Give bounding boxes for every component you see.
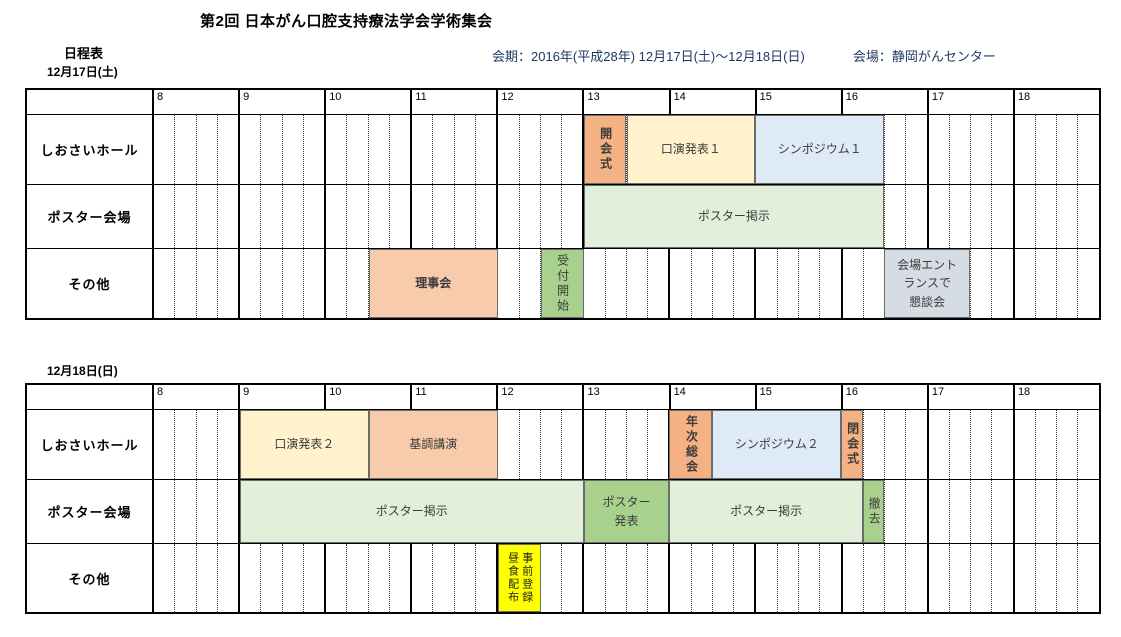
grid-quarter-cell (412, 185, 433, 248)
grid-quarter-cell (584, 544, 605, 612)
grid-quarter-cell (1057, 410, 1078, 479)
grid-quarter-cell (283, 544, 304, 612)
grid-quarter-cell (369, 115, 390, 184)
hour-label: 18 (1013, 90, 1099, 114)
grid-quarter-cell (369, 185, 390, 248)
grid-quarter-cell (261, 249, 282, 318)
grid-quarter-cell (1015, 544, 1036, 612)
grid-quarter-cell (562, 185, 584, 248)
grid-quarter-cell (304, 115, 326, 184)
grid-quarter-cell (929, 115, 950, 184)
grid-quarter-cell (369, 544, 390, 612)
hour-label: 14 (669, 90, 755, 114)
grid-quarter-cell (606, 410, 627, 479)
grid-quarter-cell (885, 115, 906, 184)
grid-quarter-cell (1057, 480, 1078, 543)
grid-quarter-cell (541, 115, 562, 184)
grid-quarter-cell (412, 544, 433, 612)
hour-cells: 89101112131415161718 (154, 90, 1099, 114)
grid-quarter-cell (734, 249, 756, 318)
grid-quarter-cell (950, 185, 971, 248)
grid-quarter-cell (455, 115, 476, 184)
hour-label: 8 (154, 385, 238, 409)
grid-quarter-cell (820, 249, 842, 318)
grid-quarter-cell (1057, 115, 1078, 184)
hour-label: 8 (154, 90, 238, 114)
grid-quarter-cell (1036, 115, 1057, 184)
grid-quarter-cell (950, 544, 971, 612)
grid-quarter-cell (175, 544, 196, 612)
grid-quarter-cell (433, 544, 454, 612)
schedule-label: 日程表 (64, 43, 103, 62)
grid-quarter-cell (713, 544, 734, 612)
grid-quarter-cell (971, 249, 992, 318)
schedule-table-day2: 89101112131415161718しおさいホール口演発表２基調講演年次総会… (25, 383, 1101, 614)
grid-quarter-cell (843, 544, 864, 612)
grid-quarter-cell (390, 115, 412, 184)
corner-cell (27, 90, 154, 114)
grid-quarter-cell (326, 115, 347, 184)
grid-quarter-cell (648, 544, 670, 612)
grid-quarter-cell (906, 185, 928, 248)
grid-quarter-cell (756, 544, 777, 612)
hour-label: 9 (238, 385, 324, 409)
grid-quarter-cell (197, 480, 218, 543)
grid-quarter-cell (433, 115, 454, 184)
grid-quarter-cell (971, 185, 992, 248)
schedule-row: しおさいホール口演発表２基調講演年次総会シンポジウム２閉会式 (27, 409, 1099, 479)
hour-label: 11 (410, 90, 496, 114)
hour-label: 12 (496, 385, 582, 409)
hour-label: 16 (841, 385, 927, 409)
grid-quarter-cell (520, 115, 541, 184)
grid-quarter-cell (992, 115, 1014, 184)
grid-quarter-cell (326, 249, 347, 318)
grid-quarter-cell (520, 249, 541, 318)
grid-quarter-cell (175, 480, 196, 543)
lunch-distribution-preregistration-column: 事前登録 (520, 552, 533, 604)
grid-quarter-cell (412, 115, 433, 184)
grid-quarter-cell (1015, 480, 1036, 543)
grid-quarter-cell (1078, 115, 1098, 184)
grid-quarter-cell (820, 544, 842, 612)
grid-quarter-cell (756, 249, 777, 318)
grid-quarter-cell (864, 249, 885, 318)
conference-period: 会期：2016年(平成28年) 12月17日(土)～12月18日(日) (492, 46, 805, 65)
grid-quarter-cell (218, 410, 240, 479)
grid-quarter-cell (1036, 249, 1057, 318)
hour-label: 17 (927, 385, 1013, 409)
grid-quarter-cell (885, 185, 906, 248)
grid-quarter-cell (197, 115, 218, 184)
hour-label: 13 (582, 90, 668, 114)
grid-quarter-cell (1078, 185, 1098, 248)
grid-quarter-cell (175, 410, 196, 479)
schedule-row: しおさいホール開会式口演発表１シンポジウム１ (27, 114, 1099, 184)
grid-quarter-cell (304, 249, 326, 318)
grid-quarter-cell (520, 410, 541, 479)
grid-quarter-cell (1015, 185, 1036, 248)
hour-label: 10 (324, 90, 410, 114)
grid-quarter-cell (261, 544, 282, 612)
annual-general-meeting: 年次総会 (669, 410, 712, 479)
grid-quarter-cell (197, 185, 218, 248)
grid-quarter-cell (971, 544, 992, 612)
grid-quarter-cell (885, 480, 906, 543)
symposium-1: シンポジウム１ (755, 115, 884, 184)
hour-label: 17 (927, 90, 1013, 114)
grid-quarter-cell (950, 115, 971, 184)
grid-quarter-cell (971, 115, 992, 184)
grid-quarter-cell (1015, 249, 1036, 318)
grid-quarter-cell (218, 249, 240, 318)
grid-quarter-cell (627, 249, 648, 318)
grid-quarter-cell (1057, 185, 1078, 248)
date-label-day2: 12月18日(日) (47, 362, 118, 379)
grid-quarter-cell (992, 249, 1014, 318)
hour-label: 16 (841, 90, 927, 114)
grid-quarter-cell (971, 410, 992, 479)
grid-quarter-cell (992, 185, 1014, 248)
symposium-2: シンポジウム２ (712, 410, 841, 479)
hour-label: 12 (496, 90, 582, 114)
grid-quarter-cell (627, 410, 648, 479)
grid-quarter-cell (347, 115, 368, 184)
poster-removal: 撤去 (863, 480, 884, 543)
grid-quarter-cell (950, 410, 971, 479)
grid-quarter-cell (476, 544, 498, 612)
row-timeline: 口演発表２基調講演年次総会シンポジウム２閉会式 (154, 410, 1099, 479)
grid-quarter-cell (692, 249, 713, 318)
grid-quarter-cell (218, 185, 240, 248)
grid-quarter-cell (541, 410, 562, 479)
grid-quarter-cell (498, 410, 519, 479)
grid-quarter-cell (929, 480, 950, 543)
grid-quarter-cell (154, 480, 175, 543)
grid-quarter-cell (929, 410, 950, 479)
grid-quarter-cell (1078, 249, 1098, 318)
grid-quarter-cell (304, 544, 326, 612)
hour-header-row: 89101112131415161718 (27, 385, 1099, 409)
grid-quarter-cell (1015, 115, 1036, 184)
grid-quarter-cell (520, 185, 541, 248)
lunch-distribution-preregistration: 昼食配布事前登録 (498, 544, 541, 612)
grid-quarter-cell (971, 480, 992, 543)
grid-quarter-cell (885, 544, 906, 612)
oral-presentation-1: 口演発表１ (627, 115, 756, 184)
grid-quarter-cell (992, 480, 1014, 543)
grid-quarter-cell (541, 185, 562, 248)
grid-quarter-cell (843, 249, 864, 318)
grid-quarter-cell (1036, 480, 1057, 543)
row-label: ポスター会場 (27, 480, 154, 543)
row-timeline: ポスター掲示ポスター 発表ポスター掲示撤去 (154, 480, 1099, 543)
grid-quarter-cell (455, 185, 476, 248)
corner-cell (27, 385, 154, 409)
grid-quarter-cell (864, 410, 885, 479)
grid-quarter-cell (283, 185, 304, 248)
grid-quarter-cell (1078, 410, 1098, 479)
grid-quarter-cell (240, 115, 261, 184)
row-label: しおさいホール (27, 410, 154, 479)
grid-quarter-cell (906, 544, 928, 612)
grid-quarter-cell (885, 410, 906, 479)
row-timeline: 昼食配布事前登録 (154, 544, 1099, 612)
grid-quarter-cell (929, 544, 950, 612)
row-timeline: ポスター掲示 (154, 185, 1099, 248)
hour-header-row: 89101112131415161718 (27, 90, 1099, 114)
board-meeting: 理事会 (369, 249, 498, 318)
grid-quarter-cell (906, 410, 928, 479)
grid-quarter-cell (175, 249, 196, 318)
grid-quarter-cell (584, 249, 605, 318)
grid-quarter-cell (562, 410, 584, 479)
grid-quarter-cell (240, 185, 261, 248)
entrance-social-gathering: 会場エント ランスで 懇談会 (884, 249, 970, 318)
grid-quarter-cell (283, 115, 304, 184)
opening-ceremony: 開会式 (584, 115, 627, 184)
grid-quarter-cell (584, 410, 605, 479)
schedule-row: その他昼食配布事前登録 (27, 543, 1099, 612)
grid-quarter-cell (154, 185, 175, 248)
grid-quarter-cell (799, 544, 820, 612)
hour-label: 13 (582, 385, 668, 409)
grid-quarter-cell (778, 544, 799, 612)
grid-quarter-cell (347, 185, 368, 248)
grid-quarter-cell (218, 480, 240, 543)
keynote-lecture: 基調講演 (369, 410, 498, 479)
schedule-row: その他理事会受付開始会場エント ランスで 懇談会 (27, 248, 1099, 318)
grid-quarter-cell (197, 544, 218, 612)
grid-quarter-cell (154, 249, 175, 318)
grid-quarter-cell (154, 544, 175, 612)
hour-label: 11 (410, 385, 496, 409)
grid-quarter-cell (433, 185, 454, 248)
row-label: その他 (27, 544, 154, 612)
grid-quarter-cell (692, 544, 713, 612)
grid-quarter-cell (713, 249, 734, 318)
hour-label: 15 (755, 385, 841, 409)
poster-presentation: ポスター 発表 (584, 480, 670, 543)
grid-quarter-cell (283, 249, 304, 318)
grid-quarter-cell (390, 544, 412, 612)
hour-label: 9 (238, 90, 324, 114)
conference-info: 会期：2016年(平成28年) 12月17日(土)～12月18日(日) 会場：静… (492, 46, 996, 65)
hour-label: 10 (324, 385, 410, 409)
grid-quarter-cell (197, 249, 218, 318)
grid-quarter-cell (390, 185, 412, 248)
grid-quarter-cell (562, 544, 584, 612)
schedule-row: ポスター会場ポスター掲示 (27, 184, 1099, 248)
schedule-table-day1: 89101112131415161718しおさいホール開会式口演発表１シンポジウ… (25, 88, 1101, 320)
grid-quarter-cell (175, 185, 196, 248)
grid-quarter-cell (1078, 480, 1098, 543)
grid-quarter-cell (240, 249, 261, 318)
hour-label: 15 (755, 90, 841, 114)
row-timeline: 理事会受付開始会場エント ランスで 懇談会 (154, 249, 1099, 318)
reception-open: 受付開始 (541, 249, 584, 318)
lunch-distribution-preregistration-column: 昼食配布 (505, 552, 518, 604)
grid-quarter-cell (734, 544, 756, 612)
hour-label: 14 (669, 385, 755, 409)
row-label: ポスター会場 (27, 185, 154, 248)
grid-quarter-cell (1057, 544, 1078, 612)
grid-quarter-cell (261, 185, 282, 248)
grid-quarter-cell (1057, 249, 1078, 318)
grid-quarter-cell (154, 115, 175, 184)
grid-quarter-cell (347, 544, 368, 612)
grid-quarter-cell (778, 249, 799, 318)
grid-quarter-cell (498, 249, 519, 318)
grid-quarter-cell (1036, 410, 1057, 479)
grid-quarter-cell (1015, 410, 1036, 479)
grid-quarter-cell (197, 410, 218, 479)
grid-quarter-cell (240, 544, 261, 612)
page-title: 第2回 日本がん口腔支持療法学会学術集会 (200, 10, 493, 31)
grid-quarter-cell (326, 185, 347, 248)
grid-quarter-cell (929, 185, 950, 248)
hour-cells: 89101112131415161718 (154, 385, 1099, 409)
closing-ceremony: 閉会式 (841, 410, 862, 479)
hour-label: 18 (1013, 385, 1099, 409)
grid-quarter-cell (992, 544, 1014, 612)
date-label-day1: 12月17日(土) (47, 63, 118, 80)
grid-quarter-cell (347, 249, 368, 318)
grid-quarter-cell (154, 410, 175, 479)
grid-quarter-cell (218, 115, 240, 184)
grid-quarter-cell (476, 115, 498, 184)
grid-quarter-cell (950, 480, 971, 543)
grid-quarter-cell (627, 544, 648, 612)
grid-quarter-cell (670, 249, 691, 318)
grid-quarter-cell (992, 410, 1014, 479)
grid-quarter-cell (218, 544, 240, 612)
poster-display-day2-morning: ポスター掲示 (240, 480, 584, 543)
grid-quarter-cell (864, 544, 885, 612)
poster-display-day1: ポスター掲示 (584, 185, 885, 248)
grid-quarter-cell (476, 185, 498, 248)
grid-quarter-cell (304, 185, 326, 248)
schedule-row: ポスター会場ポスター掲示ポスター 発表ポスター掲示撤去 (27, 479, 1099, 543)
row-label: しおさいホール (27, 115, 154, 184)
row-label: その他 (27, 249, 154, 318)
oral-presentation-2: 口演発表２ (240, 410, 369, 479)
grid-quarter-cell (562, 115, 584, 184)
grid-quarter-cell (326, 544, 347, 612)
grid-quarter-cell (606, 249, 627, 318)
conference-schedule-page: 第2回 日本がん口腔支持療法学会学術集会 日程表 会期：2016年(平成28年)… (0, 0, 1121, 637)
conference-venue: 会場：静岡がんセンター (853, 46, 996, 65)
grid-quarter-cell (906, 480, 928, 543)
row-timeline: 開会式口演発表１シンポジウム１ (154, 115, 1099, 184)
poster-display-day2-afternoon: ポスター掲示 (669, 480, 862, 543)
grid-quarter-cell (455, 544, 476, 612)
grid-quarter-cell (1036, 185, 1057, 248)
grid-quarter-cell (606, 544, 627, 612)
grid-quarter-cell (541, 544, 562, 612)
grid-quarter-cell (906, 115, 928, 184)
grid-quarter-cell (498, 115, 519, 184)
grid-quarter-cell (261, 115, 282, 184)
grid-quarter-cell (670, 544, 691, 612)
grid-quarter-cell (1036, 544, 1057, 612)
grid-quarter-cell (648, 249, 670, 318)
grid-quarter-cell (648, 410, 670, 479)
grid-quarter-cell (799, 249, 820, 318)
grid-quarter-cell (175, 115, 196, 184)
grid-quarter-cell (1078, 544, 1098, 612)
grid-quarter-cell (498, 185, 519, 248)
